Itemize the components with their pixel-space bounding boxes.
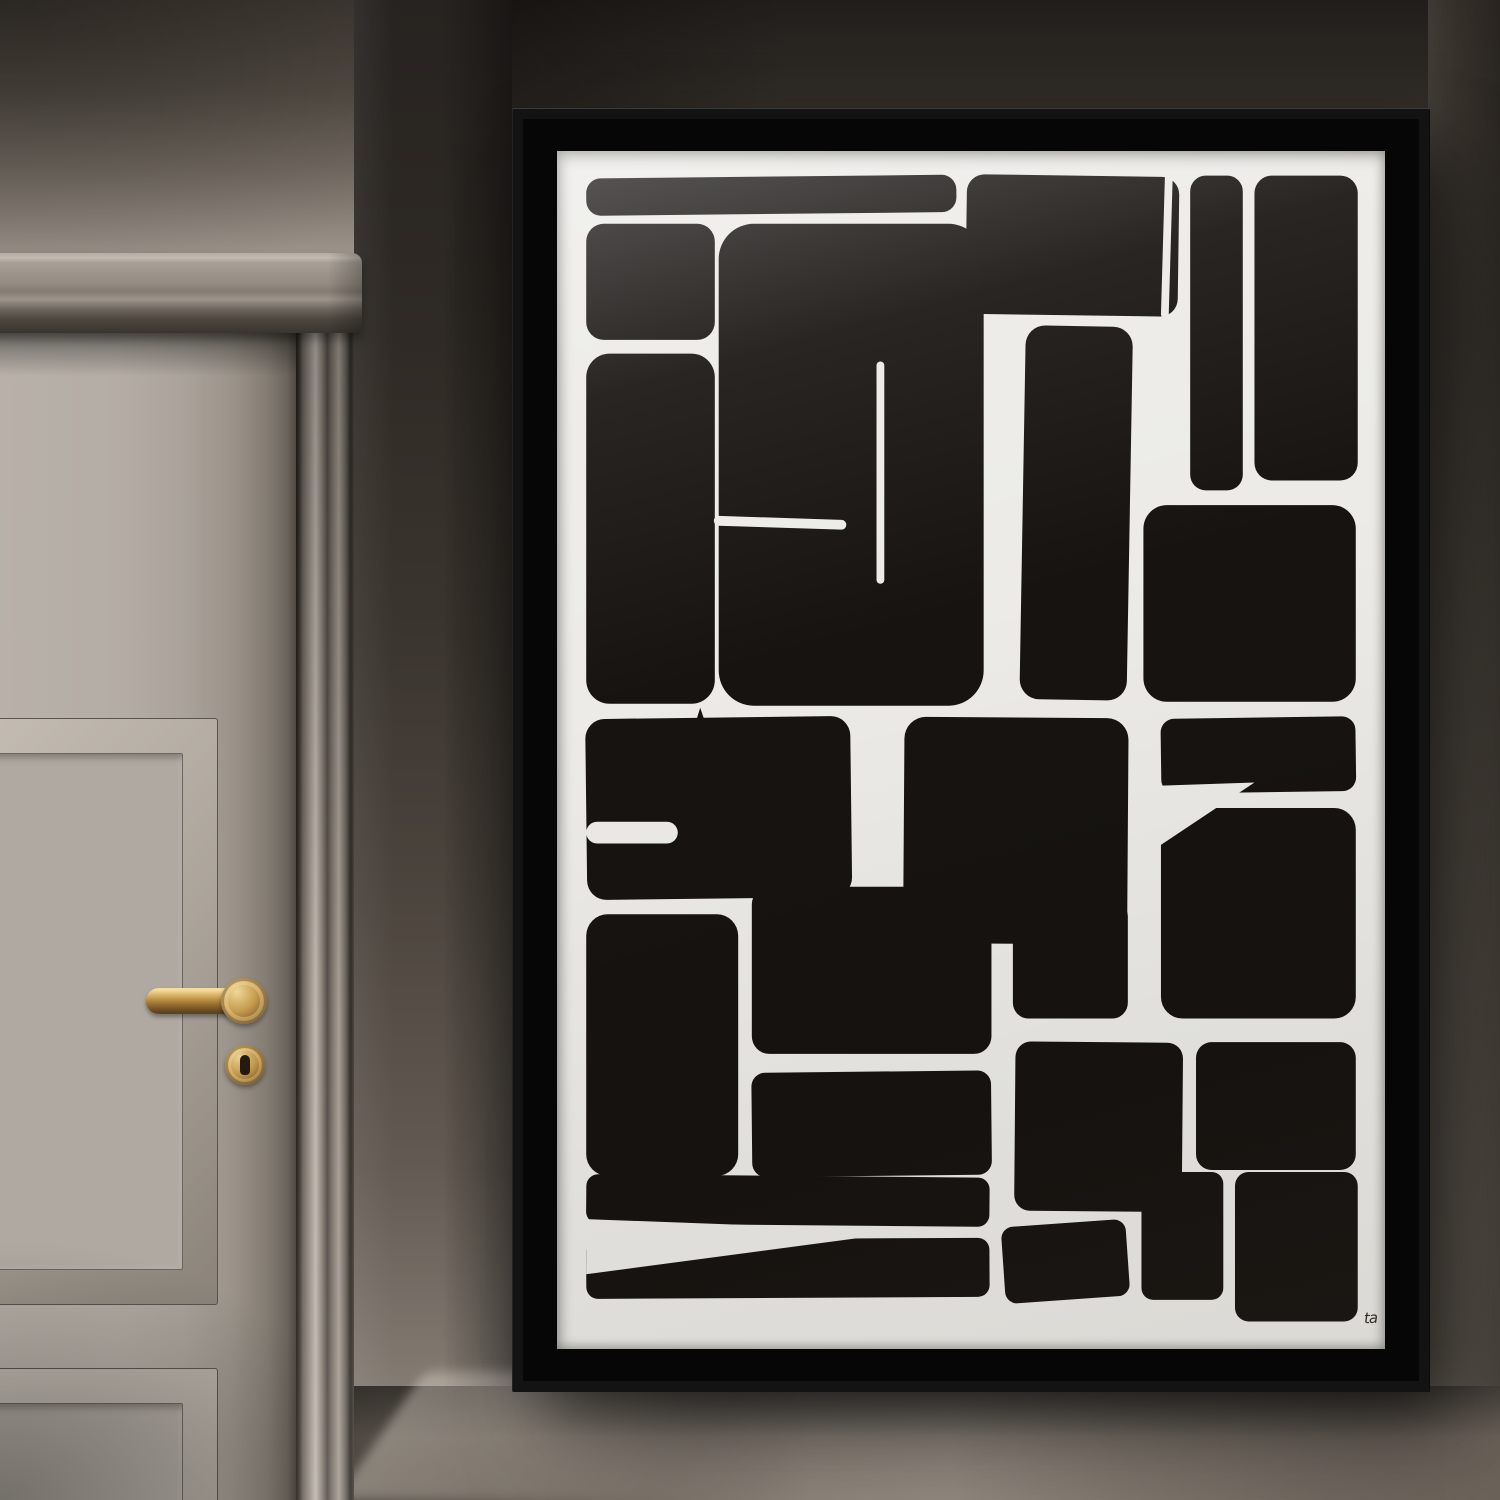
wall-above-artwork: [512, 0, 1432, 110]
door-panel-lower: [0, 1368, 218, 1500]
scene: ta: [0, 0, 1500, 1500]
door-handle-rosette: [221, 978, 267, 1024]
door-slab: [0, 330, 296, 1500]
door-casing: [296, 300, 354, 1500]
frame-inner-gap: ta: [523, 119, 1419, 1381]
door-panel-lower-field: [0, 1403, 183, 1500]
keyhole-icon: [240, 1055, 250, 1075]
artwork-canvas: ta: [557, 151, 1385, 1349]
wall-between-door-and-artwork: [354, 0, 514, 1500]
wall-right-of-artwork: [1428, 0, 1500, 1500]
door-cornice: [0, 253, 362, 333]
wall-above-door: [0, 0, 362, 262]
keyhole-escutcheon: [225, 1045, 265, 1085]
artwork-svg: [557, 151, 1385, 1349]
artwork-frame: ta: [512, 108, 1430, 1392]
artwork-signature: ta: [1364, 1309, 1378, 1327]
